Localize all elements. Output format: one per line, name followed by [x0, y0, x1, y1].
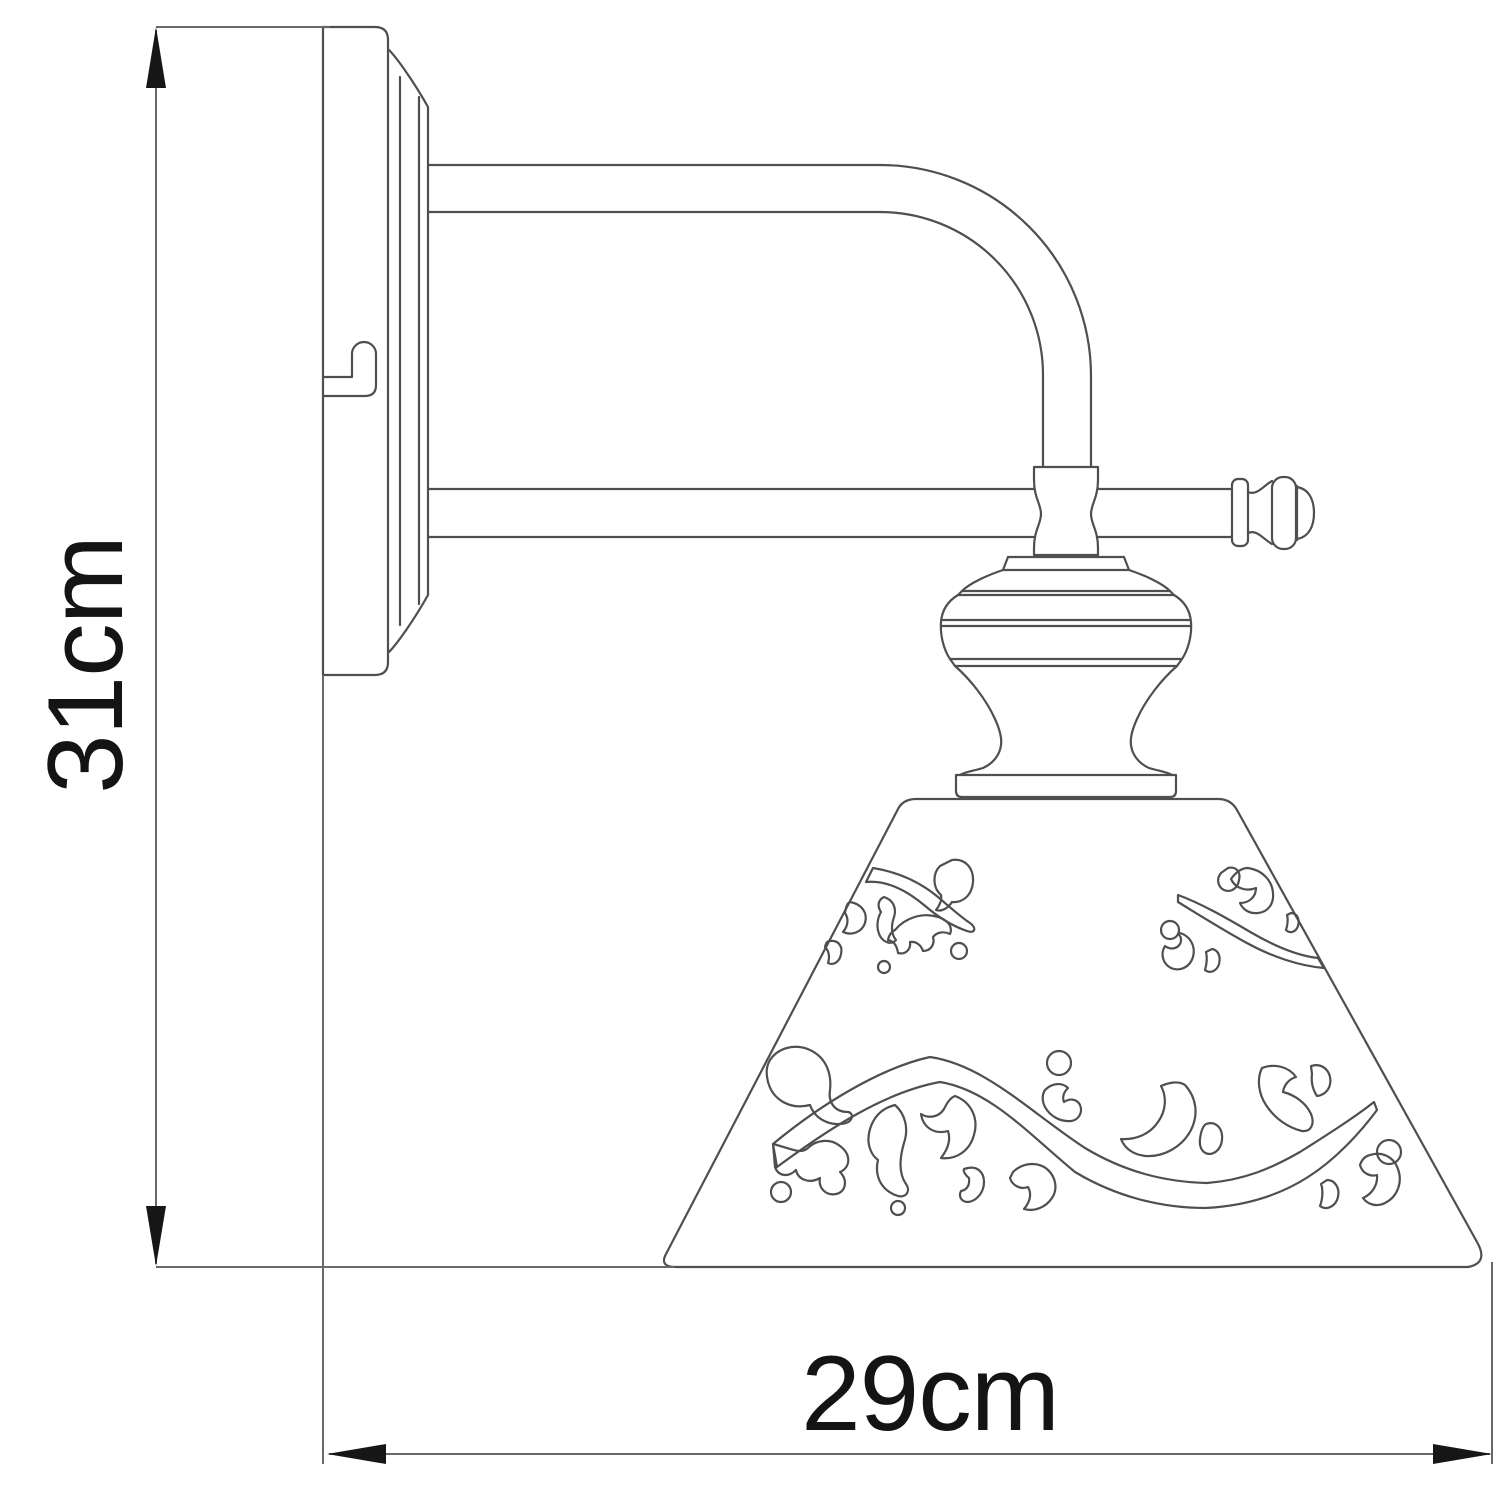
- finial-ring: [1232, 479, 1248, 546]
- finial-flare-top: [1248, 481, 1272, 493]
- arrow-right-icon: [1433, 1444, 1492, 1464]
- wall-plate: [323, 27, 428, 675]
- width-dimension-label: 29cm: [801, 1333, 1059, 1453]
- arrow-down-icon: [146, 1206, 166, 1266]
- wall-plate-dome-curve-bottom: [389, 595, 428, 652]
- support-rod: [428, 489, 1232, 537]
- lamp-drawing: [323, 27, 1481, 1267]
- shade-outline: [664, 799, 1481, 1267]
- arrow-up-icon: [146, 27, 166, 88]
- wall-plate-body: [323, 27, 388, 675]
- shade-holder-body: [941, 557, 1191, 797]
- arm-collar: [1034, 467, 1098, 555]
- sconce-dimension-diagram: 31cm 29cm: [0, 0, 1500, 1500]
- diagram-canvas: 31cm 29cm: [0, 0, 1500, 1500]
- wall-plate-dome-curve-top: [389, 50, 428, 107]
- lamp-shade: [664, 799, 1481, 1267]
- height-dimension-label: 31cm: [25, 536, 145, 794]
- finial-flare-bottom: [1248, 532, 1272, 544]
- arm-inner-edge: [428, 212, 1043, 467]
- arm-outer-edge: [428, 165, 1091, 467]
- shade-holder: [941, 557, 1191, 797]
- curved-arm: [428, 165, 1091, 467]
- arrow-left-icon: [327, 1444, 386, 1464]
- finial-disc: [1272, 477, 1296, 549]
- rod-finial: [1232, 477, 1314, 549]
- finial-cap-dome: [1297, 487, 1314, 539]
